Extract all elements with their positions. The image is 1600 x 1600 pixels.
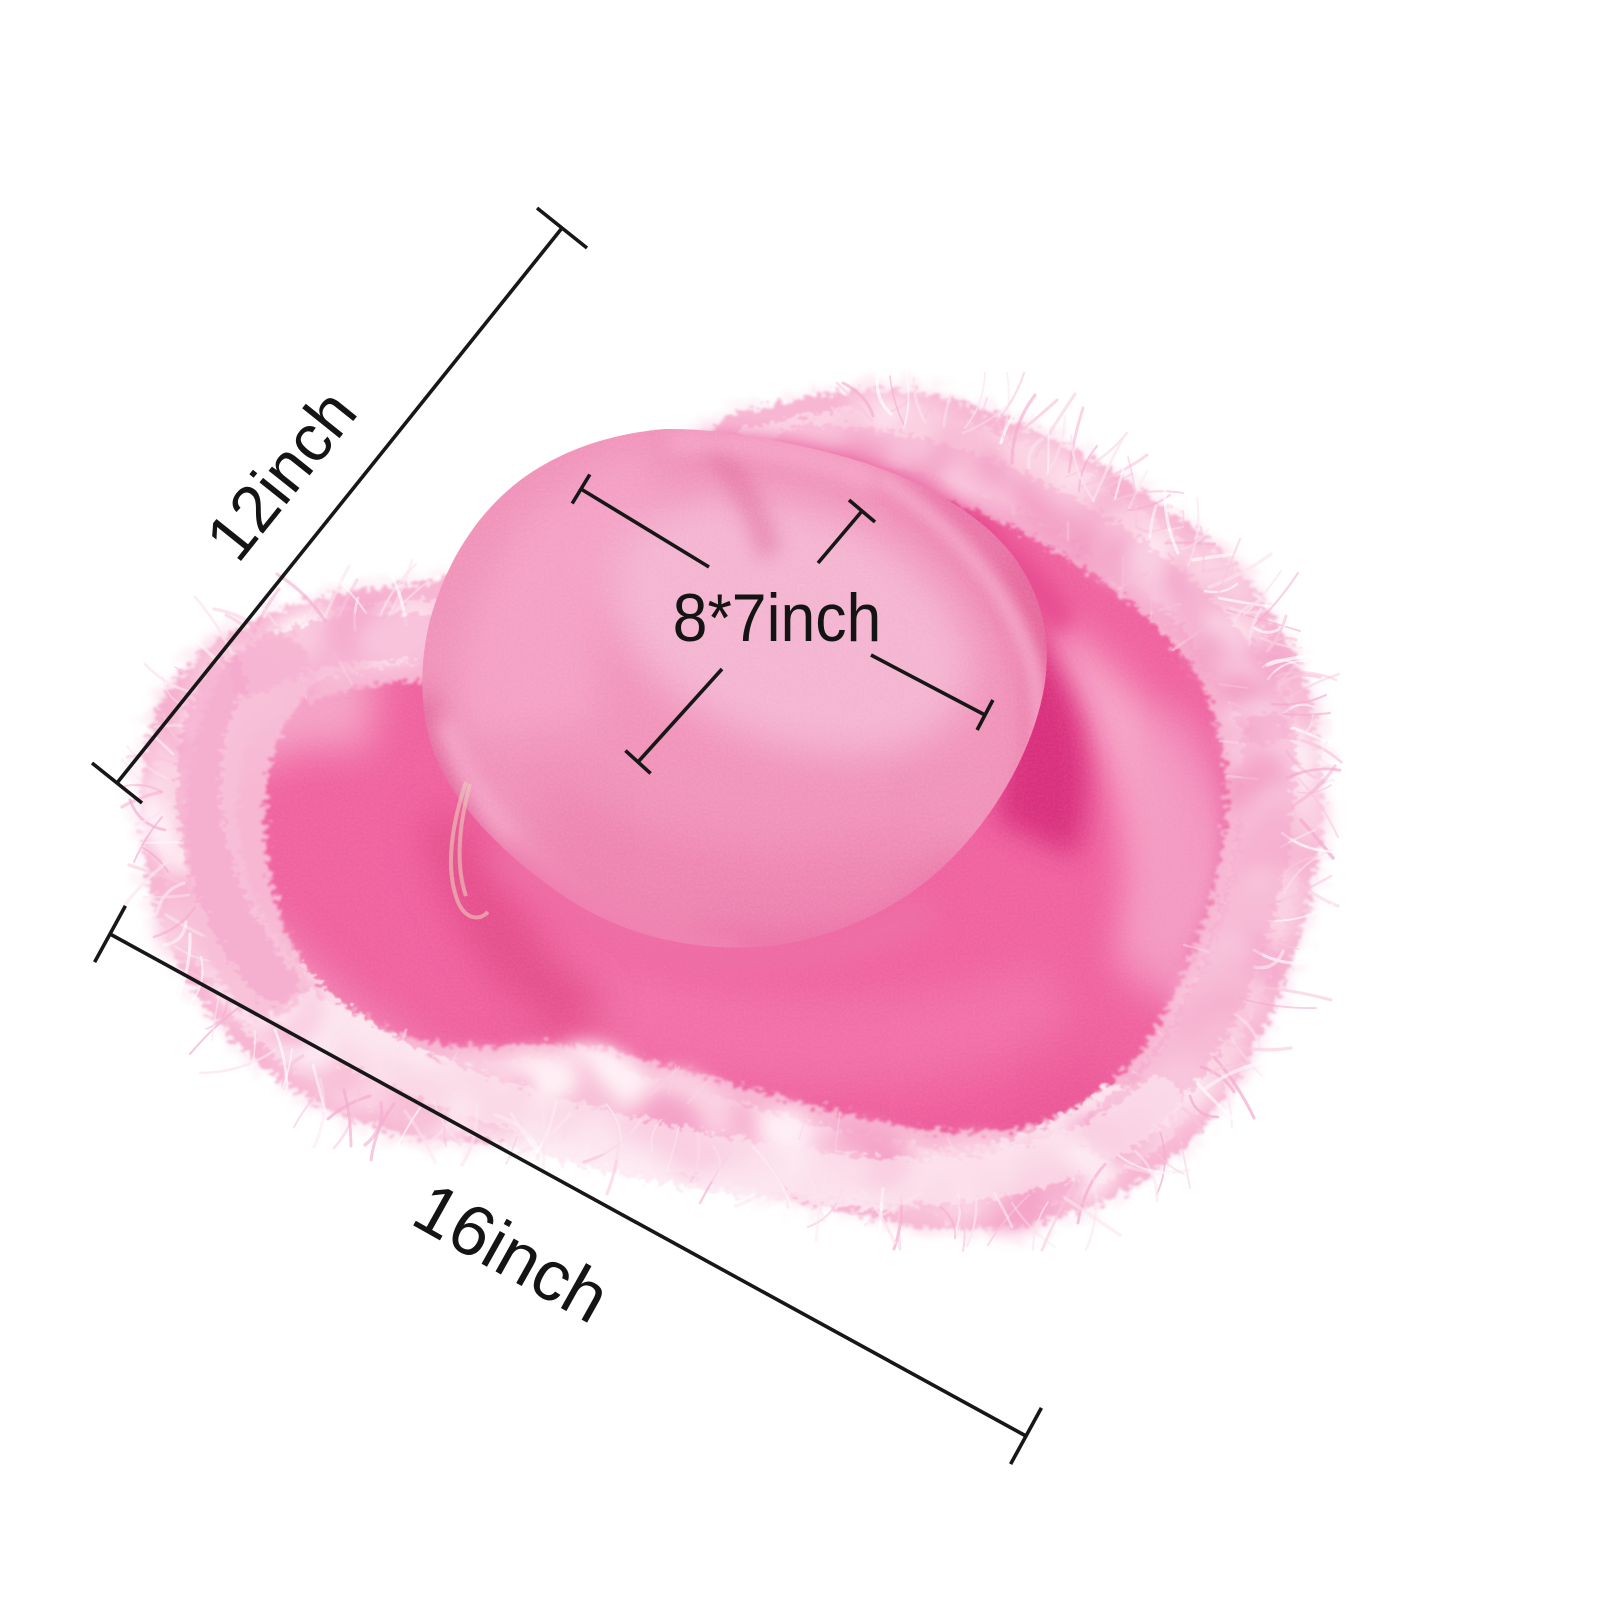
svg-text:12inch: 12inch — [191, 376, 370, 574]
svg-text:16inch: 16inch — [401, 1168, 622, 1339]
svg-text:8*7inch: 8*7inch — [673, 580, 882, 656]
